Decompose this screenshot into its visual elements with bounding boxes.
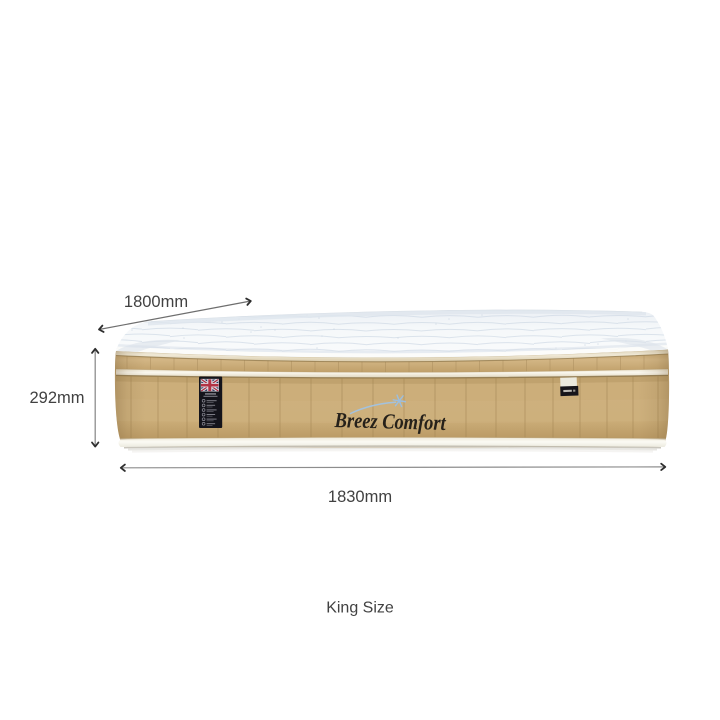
svg-text:1830mm: 1830mm [328,488,392,506]
svg-text:King Size: King Size [326,600,394,617]
svg-text:Breez Comfort: Breez Comfort [334,408,447,435]
svg-text:1800mm: 1800mm [124,293,188,311]
svg-text:292mm: 292mm [29,389,84,407]
